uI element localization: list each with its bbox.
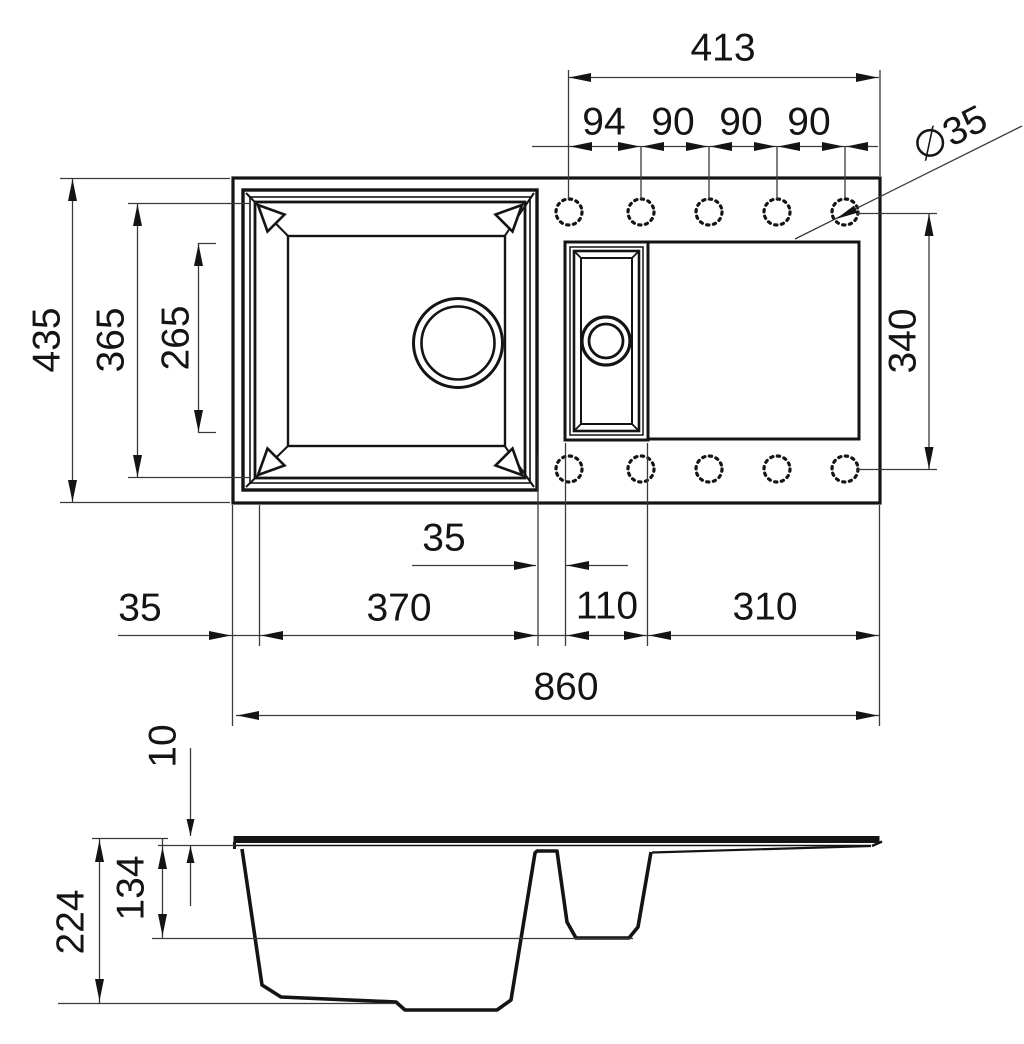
dim-hole-pitch-1: 94 [582,103,625,142]
sink-outline [233,178,880,503]
dim-hole-span: 413 [690,29,755,68]
dim-hole-pitch-2: 90 [651,103,694,142]
main-drain-icon [422,307,495,380]
tap-hole-icon [556,456,582,482]
corner-bevel-icon [496,205,523,232]
tap-hole-icon [696,456,722,482]
tap-hole-icon [628,456,654,482]
dimension-lines [58,70,1022,1004]
dim-bowl-gap: 35 [422,519,465,558]
dim-main-bowl-width: 370 [366,589,431,628]
dim-drainer-width: 310 [732,588,797,627]
main-drain-icon [414,299,503,388]
dim-left-edge-offset: 35 [118,589,161,628]
dim-overall-depth: 435 [28,307,67,372]
tap-hole-icon [832,456,858,482]
section-view [234,840,883,1011]
dim-overall-width: 860 [533,668,598,707]
bowl-profile [242,849,651,1010]
technical-drawing-canvas: 413 94 90 90 90 ∅35 435 365 265 340 35 3… [0,0,1024,1044]
drainboard-slope [652,846,871,853]
dim-half-bowl-width: 110 [576,587,638,626]
dim-hole-rows-span: 340 [884,308,923,373]
tap-hole-icon [764,456,790,482]
tap-hole-icon [696,199,722,225]
half-bowl [565,242,648,440]
tap-hole-icon [556,199,582,225]
main-bowl [243,190,537,490]
tap-hole-icon [628,199,654,225]
corner-bevel-icon [496,449,523,476]
plan-view [233,178,880,503]
tap-hole-icon [764,199,790,225]
dim-half-bowl-depth: 134 [112,855,151,920]
dim-main-bowl-depth: 224 [52,889,91,954]
dim-hole-pitch-3: 90 [719,103,762,142]
drawing-linework [0,0,1024,1044]
drainboard [648,242,859,439]
dim-bowl-outer-depth: 365 [92,307,131,372]
dim-hole-pitch-4: 90 [787,103,830,142]
dim-rim-thickness: 10 [144,724,183,767]
half-drain-icon [589,324,623,358]
dim-bowl-inner-depth: 265 [157,305,196,370]
leader-arrow-icon [836,206,858,219]
